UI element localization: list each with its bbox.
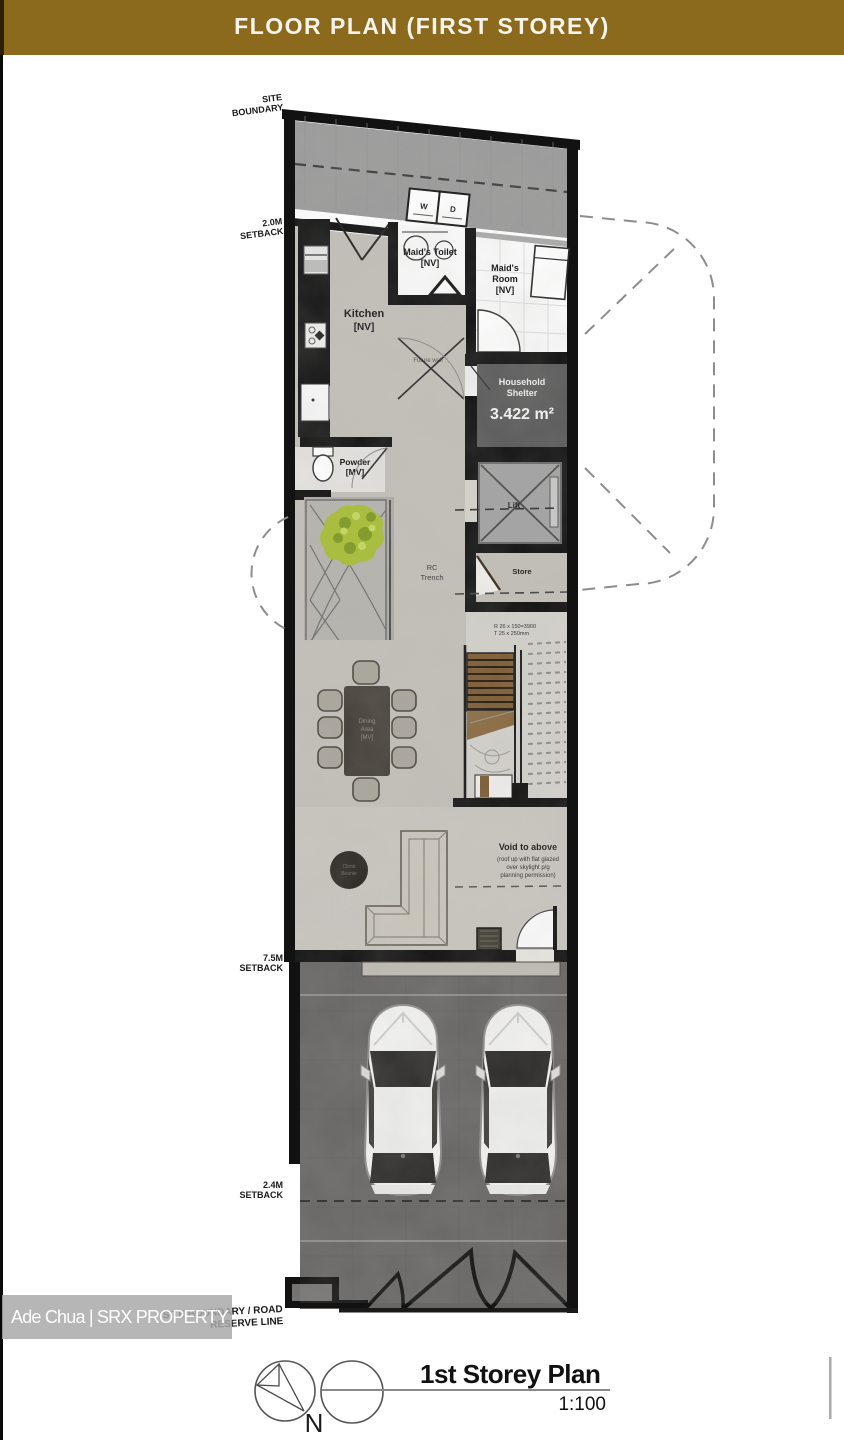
- svg-text:SETBACK: SETBACK: [240, 226, 285, 241]
- svg-text:SETBACK: SETBACK: [239, 1190, 283, 1200]
- svg-text:BOUNDARY: BOUNDARY: [231, 102, 284, 118]
- svg-text:7.5M: 7.5M: [263, 953, 283, 963]
- svg-text:1st Storey Plan: 1st Storey Plan: [420, 1359, 600, 1389]
- svg-text:2.4M: 2.4M: [263, 1180, 283, 1190]
- svg-text:N: N: [305, 1408, 324, 1438]
- svg-text:SETBACK: SETBACK: [239, 963, 283, 973]
- svg-text:1:100: 1:100: [558, 1394, 606, 1415]
